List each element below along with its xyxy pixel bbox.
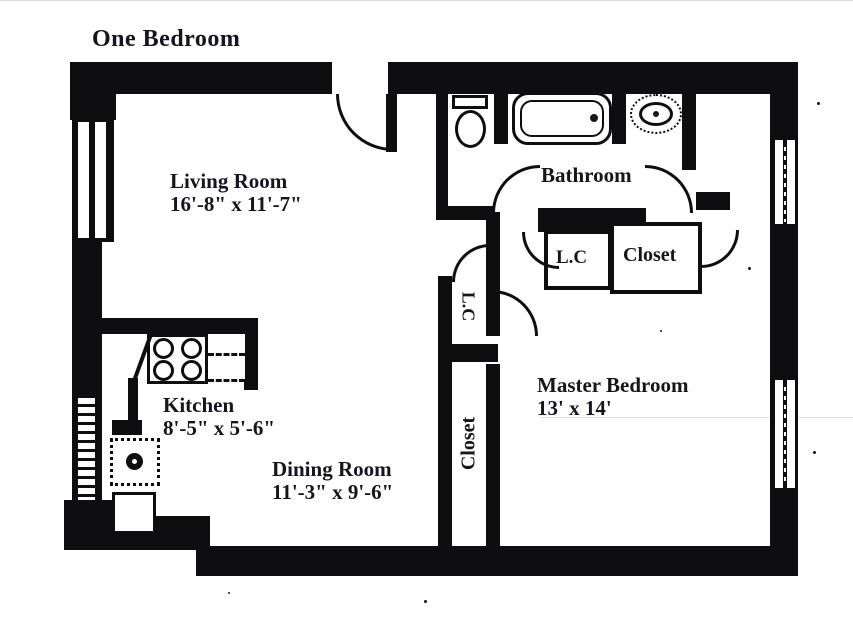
hall-closet-box: Closet [610,222,702,294]
master-bedroom-dims: 13' x 14' [537,397,688,420]
hall-closet-label: Closet [623,244,676,267]
window-divider [784,382,786,486]
plan-title: One Bedroom [92,26,240,53]
kitchen-counter [208,356,245,382]
scan-speck [424,600,427,603]
scan-speck [228,592,230,594]
master-bedroom-name: Master Bedroom [537,374,688,397]
closet-strip-label: Closet [458,411,481,477]
master-door-arc [492,290,538,336]
window-pane [775,380,783,488]
dining-room-dims: 11'-3" x 9'-6" [272,481,393,504]
sink-nook-divider [682,94,696,170]
linen2-door-arc [452,244,490,282]
window-hatched [78,398,95,502]
linen-closet-door-arc [522,232,559,269]
linen2-label: L.C [458,285,479,329]
kitchen-right-stub [244,318,258,390]
bathroom-left-wall [436,94,448,212]
hall-bedroom-wall-lower [486,364,500,546]
window-pane [95,122,106,238]
kitchen-sink-drain [126,453,143,470]
scan-speck [817,102,820,105]
tub-sink-divider [612,94,626,144]
hall-closet-door-arc [701,230,739,268]
living-room-name: Living Room [170,170,302,193]
top-wall-right [388,62,796,94]
entry-door-arc [336,94,393,151]
linen-closet-label: L.C [556,247,587,269]
bathroom-label: Bathroom [541,163,632,188]
dining-room-label: Dining Room 11'-3" x 9'-6" [272,458,393,503]
kitchen-cabinet [112,492,156,534]
floor-plan: One Bedroom Bathroom L.C [0,0,853,621]
toilet-tub-divider [494,94,508,144]
toilet-tank [452,95,488,109]
left-wall-upper [70,62,116,120]
stove-burner [153,338,174,359]
stove-burner [181,338,202,359]
bathtub-drain [590,114,598,122]
nook-wall-stub [696,192,730,210]
window-pane [787,140,795,224]
bathroom-door2-arc [645,165,693,213]
bottom-wall-main [196,546,798,576]
bathroom-sink-drain [653,111,659,117]
stove-burner [181,360,202,381]
window-pane [78,122,89,238]
scan-speck [813,451,816,454]
window-pane [775,140,783,224]
stove-burner [153,360,174,381]
living-room-label: Living Room 16'-8" x 11'-7" [170,170,302,215]
toilet-bowl [455,110,486,148]
closet-strip-left-wall [438,330,452,546]
kitchen-counter-edge [112,420,142,435]
master-bedroom-label: Master Bedroom 13' x 14' [537,374,688,419]
kitchen-inner-wall [128,378,138,424]
kitchen-label: Kitchen 8'-5" x 5'-6" [163,394,275,439]
kitchen-top-wall [84,318,258,334]
bathroom-door-arc [492,165,540,213]
window-pane [787,380,795,488]
window-divider [784,142,786,222]
kitchen-dims: 8'-5" x 5'-6" [163,417,275,440]
dining-room-name: Dining Room [272,458,393,481]
scan-line [0,0,853,1]
scan-speck [748,267,751,270]
kitchen-counter [208,334,245,356]
scan-speck [660,330,662,332]
living-room-dims: 16'-8" x 11'-7" [170,193,302,216]
kitchen-sink-drain-hole [132,459,137,464]
kitchen-name: Kitchen [163,394,275,417]
